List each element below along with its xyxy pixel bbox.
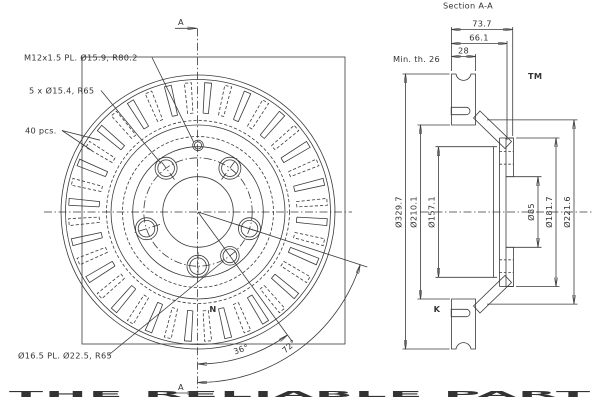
friction-ring-bottom-section [452, 299, 476, 349]
bolt-holes [132, 156, 263, 281]
vane-slot [203, 310, 212, 341]
vane-slot [247, 100, 268, 129]
vane-slot [71, 233, 102, 246]
vane-slot [260, 286, 285, 313]
vane-slot [288, 159, 319, 176]
vane-slot [164, 85, 177, 116]
vane-slot [272, 125, 299, 150]
bolt-hole [222, 160, 239, 177]
drawing-canvas: N K TM THE RELIABLE PART 36° 72° [0, 0, 600, 400]
dim-inner-width: 66.1 [469, 33, 488, 43]
bolt-holes-note: 5 x Ø15.4, R65 [29, 86, 94, 96]
nk-logo-square [82, 57, 345, 344]
vane-count-leader-1 [62, 131, 100, 141]
section-title: Section A-A [443, 1, 493, 11]
thread-spec-note: M12x1.5 PL. Ø15.9, R80.2 [24, 53, 138, 63]
vane-slot [86, 261, 115, 282]
dim-dia-friction-inner: Ø210.1 [409, 196, 419, 228]
locating-hole-note: Ø16.5 PL. Ø22.5, R65 [18, 351, 112, 361]
dim-dia-drum-inner: Ø157.1 [427, 196, 437, 228]
vane-slot [184, 310, 193, 341]
vane-slot [260, 111, 285, 138]
bolt-hole-chamfer [219, 157, 241, 179]
vane-slot [111, 111, 136, 138]
brake-disc-technical-drawing: N K TM THE RELIABLE PART 36° 72° [0, 0, 600, 400]
vane-slot [164, 308, 177, 339]
vane-slot [294, 233, 325, 246]
friction-ring-top-section [452, 74, 476, 125]
vane-slot [281, 261, 310, 282]
vane-slot [184, 83, 193, 114]
vent-channel-bottom [451, 309, 470, 316]
dim-overall-width: 73.7 [472, 19, 491, 29]
m12-thread-hole-minor [194, 142, 201, 149]
dim-dia-hat: Ø221.6 [562, 196, 572, 228]
vane-count-note: 40 pcs. [25, 126, 57, 136]
vane-slot [71, 178, 102, 191]
dim-dia-bore: Ø85 [526, 203, 536, 221]
vane-slot [247, 295, 268, 324]
dimension-lines [406, 30, 575, 350]
vane-slot [219, 308, 232, 339]
vane-slot [219, 85, 232, 116]
section-marker-bottom: A [178, 382, 184, 392]
vane-slot [233, 302, 250, 333]
vane-slot [233, 91, 250, 122]
vane-slot [296, 198, 327, 207]
locating-hole-note-leader [108, 261, 224, 356]
section-marker-top: A [178, 17, 184, 27]
dim-dia-outer: Ø329.7 [394, 196, 404, 228]
min-thickness-note: Min. th. 26 [393, 54, 440, 64]
extension-lines [403, 27, 578, 349]
vane-slot [111, 286, 136, 313]
vane-slot [145, 91, 162, 122]
section-view: Section A-A [393, 1, 592, 350]
vane-slot [296, 217, 327, 226]
vane-slot [127, 295, 148, 324]
vane-slot [203, 83, 212, 114]
vane-slot [69, 198, 100, 207]
vane-slot [281, 141, 310, 162]
vane-slot [97, 274, 124, 299]
vane-slot [294, 178, 325, 191]
dim-dia-flange: Ø181.7 [544, 196, 554, 228]
vane-slot [272, 274, 299, 299]
front-view: 36° 72° M12x1.5 PL. Ø15.9, R80.2 5 x Ø15… [18, 17, 367, 393]
dim-thickness: 28 [458, 46, 469, 56]
vane-slot [69, 217, 100, 226]
reliable-part-banner: THE RELIABLE PART [9, 389, 593, 399]
nk-logo-letter-n: N [209, 304, 216, 314]
nk-logo-letter-k: K [434, 304, 441, 314]
trademark-mark: TM [528, 71, 542, 81]
vent-channel-top [451, 107, 470, 114]
vane-slot [86, 141, 115, 162]
vane-slot [97, 125, 124, 150]
vane-slot [127, 100, 148, 129]
